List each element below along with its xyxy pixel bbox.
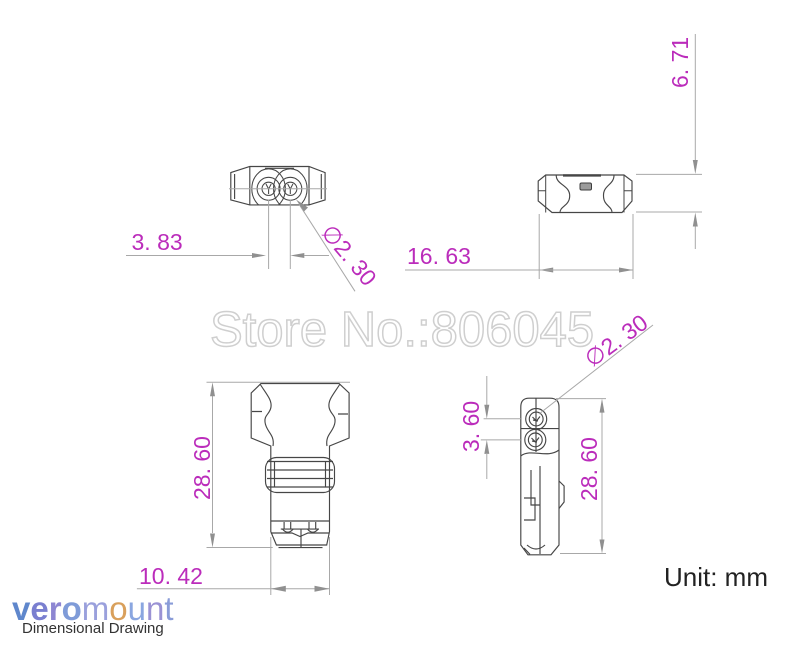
svg-text:3. 60: 3. 60 [458,401,484,452]
svg-text:Store No.:806045: Store No.:806045 [210,303,594,357]
svg-text:Unit: mm: Unit: mm [664,562,768,592]
svg-text:28. 60: 28. 60 [189,436,215,500]
svg-text:Dimensional Drawing: Dimensional Drawing [22,620,164,637]
svg-text:3. 83: 3. 83 [132,229,183,255]
svg-text:6. 71: 6. 71 [667,37,693,88]
svg-text:16. 63: 16. 63 [407,243,471,269]
svg-text:28. 60: 28. 60 [576,437,602,501]
svg-text:10. 42: 10. 42 [139,563,203,589]
